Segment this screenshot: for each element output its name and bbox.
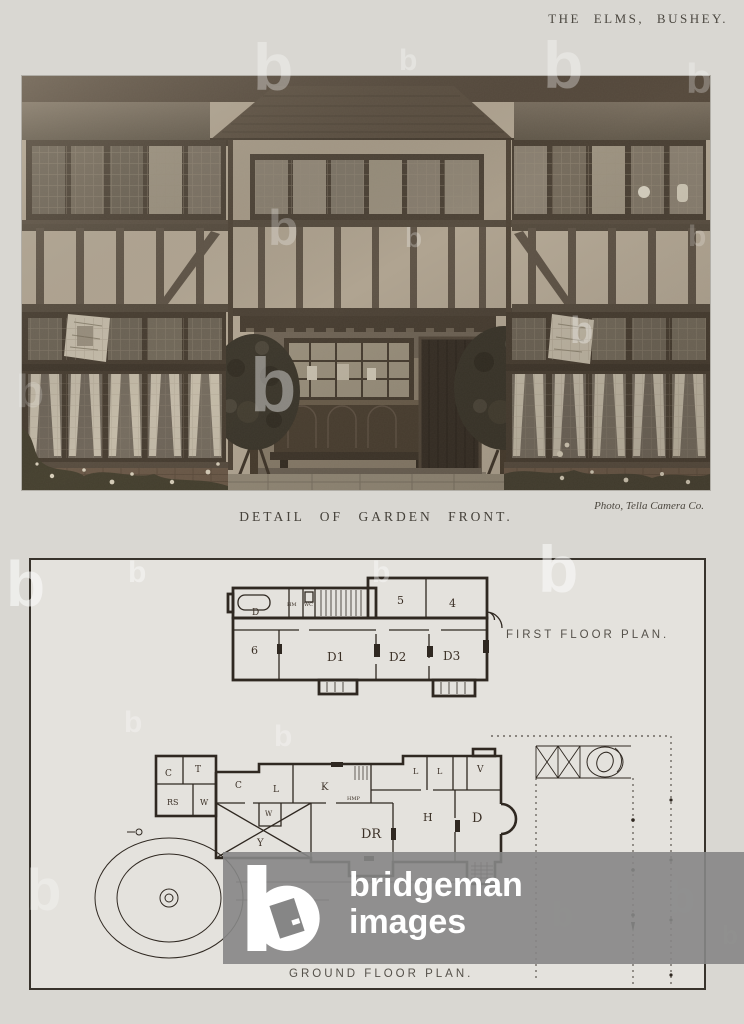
room-label: D1: [327, 650, 344, 664]
room-label: K: [321, 782, 329, 793]
first-floor-plan-title: FIRST FLOOR PLAN.: [506, 629, 669, 641]
brand-line-1: bridgeman: [349, 867, 523, 904]
room-label: L: [413, 767, 419, 776]
watermark-letter: b: [399, 46, 417, 76]
room-label: D: [252, 608, 259, 618]
room-label: V: [476, 765, 484, 775]
room-label: L: [437, 767, 443, 776]
room-label: HMP: [347, 796, 360, 802]
brand-line-2: images: [349, 904, 523, 941]
photo-credit: Photo, Tella Camera Co.: [594, 500, 704, 512]
room-label: WC: [304, 602, 313, 608]
watermark-band: bridgeman images: [223, 852, 744, 964]
photo-caption: DETAIL OF GARDEN FRONT.: [176, 509, 576, 525]
garden-photo: [22, 76, 710, 490]
room-label: 4: [449, 597, 456, 610]
brand-wordmark: bridgeman images: [349, 867, 523, 941]
room-label: HM: [287, 602, 296, 608]
room-label: D3: [443, 649, 460, 663]
room-label: H: [423, 811, 433, 824]
room-label: Y: [256, 838, 264, 849]
room-label: C: [165, 769, 172, 779]
room-label: T: [195, 765, 201, 775]
ground-floor-room-labels: C T RS W C L W K HMP Y DR L L V H D: [165, 765, 484, 849]
first-floor-plan: [228, 578, 502, 696]
page-header: THE ELMS, BUSHEY.: [548, 11, 728, 27]
bridgeman-logo-icon: [247, 865, 327, 951]
room-label: W: [200, 798, 209, 807]
scanned-page: THE ELMS, BUSHEY.: [0, 0, 744, 1024]
room-label: DR: [361, 827, 382, 842]
room-label: D: [472, 811, 482, 826]
room-label: 6: [251, 644, 258, 657]
room-label: W: [265, 810, 273, 818]
room-label: RS: [167, 798, 179, 807]
room-label: C: [235, 781, 242, 791]
room-label: L: [273, 785, 279, 795]
room-label: 5: [397, 594, 404, 607]
ground-floor-plan-title: GROUND FLOOR PLAN.: [289, 968, 473, 980]
room-label: D2: [389, 650, 406, 664]
garden-photo-illustration: [22, 76, 710, 490]
